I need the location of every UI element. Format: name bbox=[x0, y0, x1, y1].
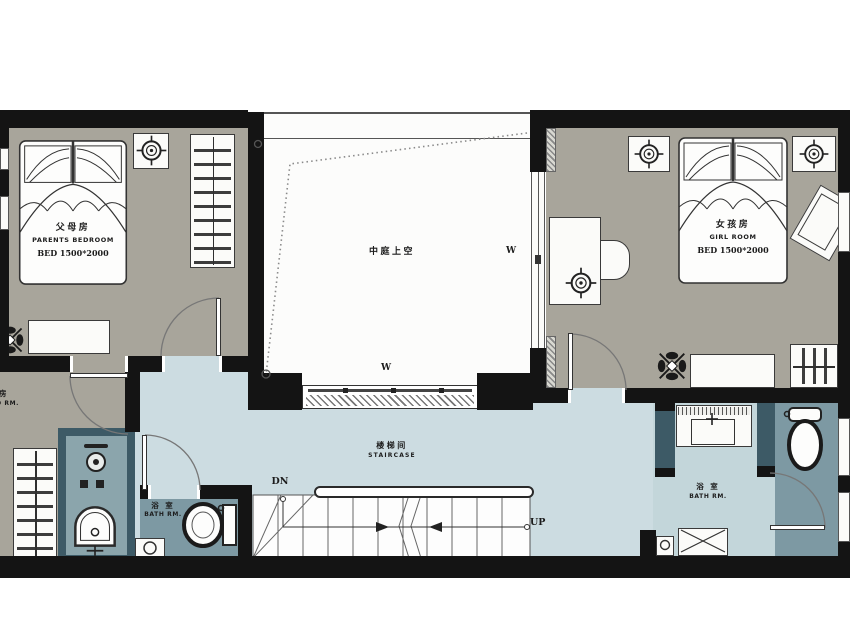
wall bbox=[530, 348, 546, 390]
wall bbox=[0, 556, 850, 578]
parents-wardrobe bbox=[190, 134, 235, 268]
bath-right-label-cn: 浴 室 bbox=[678, 483, 738, 491]
shower-arm bbox=[84, 444, 108, 448]
window-mark: W bbox=[504, 247, 518, 256]
bath-left-label-en: BATH RM. bbox=[133, 512, 193, 518]
door-opening bbox=[162, 356, 222, 372]
door-leaf bbox=[568, 333, 573, 390]
ceiling-light-icon bbox=[798, 138, 830, 170]
window bbox=[0, 148, 9, 170]
ceiling-fan-icon bbox=[655, 349, 689, 383]
wall bbox=[530, 128, 546, 172]
wall bbox=[625, 388, 850, 403]
parents-dresser bbox=[28, 320, 110, 354]
door-leaf bbox=[216, 298, 221, 356]
floor-plan: 父母房 PARENTS BEDROOM BED 1500*2000 女孩房 GI… bbox=[0, 0, 850, 637]
girl-nightstand-right bbox=[792, 136, 836, 172]
wall bbox=[222, 356, 250, 372]
wall bbox=[530, 110, 850, 128]
girl-room-label-en: GIRL ROOM bbox=[673, 234, 793, 241]
wall bbox=[125, 372, 140, 432]
ceiling-light-icon bbox=[564, 266, 598, 300]
wall-hatch bbox=[546, 128, 556, 172]
door-leaf bbox=[770, 525, 825, 530]
bath-right-partition-wc bbox=[757, 403, 775, 473]
atrium-railing bbox=[302, 385, 478, 409]
wall bbox=[238, 485, 252, 563]
ceiling-light-icon bbox=[135, 134, 168, 167]
window bbox=[838, 192, 850, 252]
girl-bench bbox=[690, 354, 775, 388]
bath-right-vanity bbox=[676, 405, 752, 447]
wall-hatch bbox=[546, 336, 556, 388]
window-mark: W bbox=[379, 364, 393, 373]
wall bbox=[477, 373, 533, 410]
parents-light-niche bbox=[133, 133, 169, 169]
bath-right-drain-box bbox=[656, 536, 674, 556]
bath-left-label-cn: 浴 室 bbox=[133, 502, 193, 510]
parents-bedroom-label-cn: 父母房 bbox=[23, 224, 123, 233]
wall bbox=[533, 388, 568, 403]
bath-left-shower-room bbox=[58, 428, 135, 563]
parents-bed-size: BED 1500*2000 bbox=[23, 249, 123, 257]
window bbox=[0, 196, 9, 230]
atrium-top-band bbox=[264, 114, 530, 139]
atrium-window bbox=[531, 168, 545, 350]
door-leaf bbox=[70, 373, 128, 378]
door-opening bbox=[70, 356, 128, 372]
window bbox=[838, 418, 850, 476]
toilet-icon bbox=[782, 405, 828, 473]
stair-handrail bbox=[315, 487, 533, 497]
partial-room-wardrobe bbox=[13, 448, 57, 560]
atrium-label: 中庭上空 bbox=[347, 248, 437, 257]
bath-right-label-en: BATH RM. bbox=[678, 494, 738, 500]
girl-bed-size: BED 1500*2000 bbox=[683, 246, 783, 254]
stair-down-label: DN bbox=[268, 477, 292, 487]
girl-room-label-cn: 女孩房 bbox=[683, 221, 783, 230]
stair-up-label: UP bbox=[530, 518, 554, 528]
bath-right-partition-left bbox=[655, 403, 675, 475]
partial-room-label-en: O RM. bbox=[0, 401, 36, 407]
partial-room-label-cn: 人房 bbox=[0, 390, 30, 398]
bath-right-shower-tray bbox=[678, 528, 728, 556]
parents-bedroom-label-en: PARENTS BEDROOM bbox=[13, 237, 133, 244]
ceiling-light-icon bbox=[633, 138, 665, 170]
parents-bed bbox=[14, 138, 132, 286]
door-opening bbox=[568, 388, 625, 403]
wall bbox=[248, 112, 264, 385]
faucet-icon bbox=[705, 412, 719, 426]
girl-wardrobe bbox=[790, 344, 838, 388]
wall bbox=[0, 110, 248, 128]
washbasin-icon bbox=[70, 498, 120, 558]
wall bbox=[640, 530, 656, 556]
window bbox=[838, 492, 850, 542]
staircase-label-en: STAIRCASE bbox=[342, 453, 442, 459]
shower-head-icon bbox=[84, 450, 108, 474]
girl-desk-chair bbox=[600, 240, 630, 280]
girl-nightstand-left bbox=[628, 136, 670, 172]
staircase-label-cn: 楼梯间 bbox=[342, 442, 442, 450]
door-opening bbox=[148, 485, 200, 499]
girl-bed bbox=[677, 130, 789, 290]
door-leaf bbox=[142, 435, 147, 490]
wall bbox=[248, 373, 302, 410]
